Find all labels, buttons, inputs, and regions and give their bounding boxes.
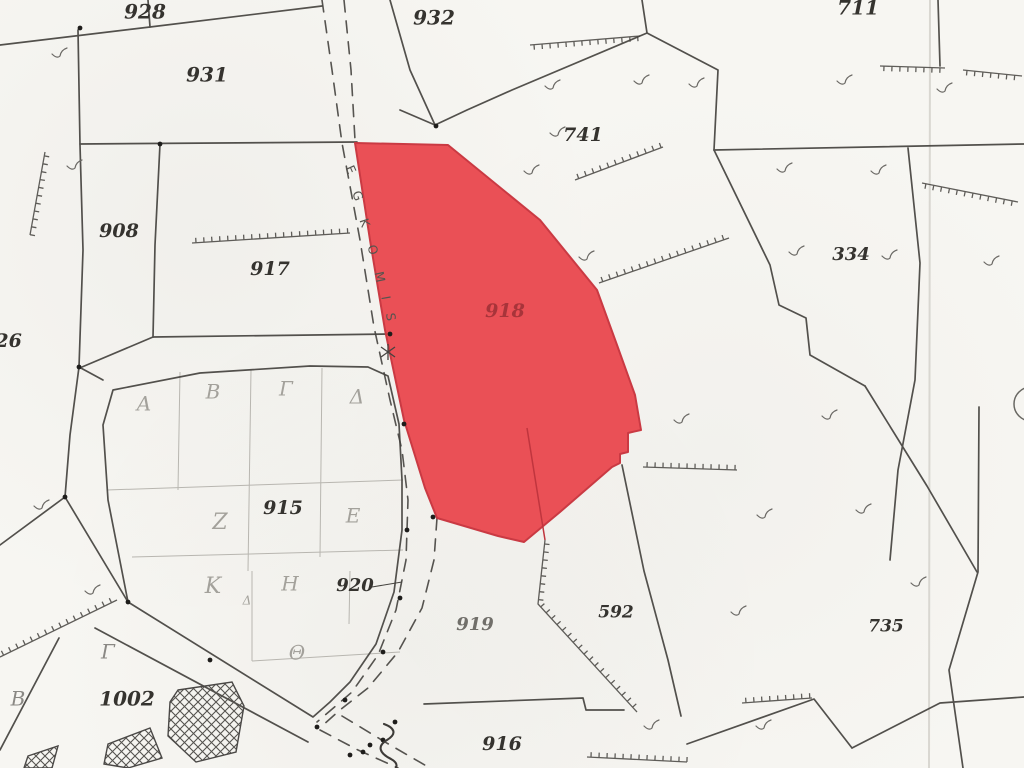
tick-marks [196,228,348,243]
greek-letter: Γ [278,377,294,401]
parcel-915-outline [103,366,402,717]
tick-base-line [575,147,663,180]
greek-letter: Γ [100,640,116,664]
scrub-mark [822,410,837,419]
boundary-line [647,33,718,150]
parcel-label-920: 920 [336,575,374,596]
cadastral-map-page: 918ΑΒΓΔΖΕΚΗΘΔΓΒ9289319327117413349089173… [0,0,1024,768]
survey-monument [381,650,386,655]
boundary-line [865,386,977,572]
boundary-line [642,0,647,33]
road-edge-dashed [320,730,398,768]
survey-monument [78,26,83,31]
boundary-line [80,142,357,144]
tick-base-line [538,540,637,712]
boundary-line [424,698,624,710]
parcel-label-1002: 1002 [99,687,155,711]
boundary-line [687,699,852,748]
tick-marks [967,70,1015,80]
scrub-mark [756,720,771,729]
scrub-mark [911,577,926,586]
boundary-line [714,144,1024,150]
survey-monument [343,698,348,703]
greek-letters: ΑΒΓΔΖΕΚΗΘΔΓΒ [10,377,365,711]
boundary-line [153,334,390,337]
building-hatched [24,746,58,768]
leader-line-920 [372,582,402,587]
boundary-line [714,150,865,386]
map-svg: 918ΑΒΓΔΖΕΚΗΘΔΓΒ9289319327117413349089173… [0,0,1024,768]
tick-base-line [643,467,737,470]
parcel-label-908: 908 [99,220,139,242]
grid-line [132,550,403,557]
boundary-line [938,0,940,66]
tick-base-line [742,698,812,703]
scrub-mark [674,414,689,423]
greek-letter: Ζ [211,510,228,535]
survey-monument [402,422,407,427]
boundary-line [65,30,83,497]
scrub-mark [634,75,649,84]
scrub-mark [757,509,772,518]
scrub-mark [524,165,539,174]
road-name-letter: E [342,163,359,176]
scrub-mark [837,75,852,84]
boundary-line [400,33,647,125]
scrub-mark [882,250,897,259]
tick-base-line [192,233,350,243]
scrub-mark [856,504,871,513]
scrub-mark [85,585,100,594]
scrub-mark [777,163,792,172]
scrub-mark [871,165,886,174]
boundary-line [0,638,59,750]
parcel-label-735: 735 [868,617,904,637]
scrub-mark [34,500,49,509]
greek-letter: Β [10,687,26,711]
tick-marks [601,235,724,282]
boundary-line [0,497,65,545]
highlight-parcel-918: 918 [355,143,641,542]
scrub-mark [731,606,746,615]
tick-base-line [587,757,687,762]
survey-monument [63,495,68,500]
scrub-mark [644,720,659,729]
tick-base-line [880,66,945,68]
parcel-label-741: 741 [563,124,603,146]
parcel-label-915: 915 [263,497,303,519]
scrub-mark [579,251,594,260]
scrub-mark [937,83,952,92]
tick-marks [1,598,111,655]
survey-monument [348,753,353,758]
grid-line [320,368,322,557]
scrub-mark [545,80,560,89]
survey-monument [398,596,403,601]
scrub-mark [52,48,67,57]
tick-marks [925,184,1012,206]
greek-letter: Δ [242,594,252,608]
road-edge-dashed [322,518,437,726]
greek-letter: Ε [345,504,361,528]
survey-monument [405,528,410,533]
parcel-label-334: 334 [832,244,870,265]
building-hatched [168,682,244,762]
building-hatched [104,728,162,768]
sheet-fold-line [929,0,930,768]
parcel-label-931: 931 [186,63,228,87]
grid-line [252,652,400,661]
tick-marks [746,693,810,703]
boundary-line [153,144,160,337]
parcel-label-711: 711 [837,0,879,20]
tick-base-line [0,600,117,657]
survey-monument [431,515,436,520]
tick-base-line [30,152,45,235]
tick-marks [577,143,661,179]
greek-letter: Β [205,380,221,404]
boundary-line [890,148,920,560]
grid-line [178,372,180,490]
survey-monument [434,124,439,129]
boundary-line [622,465,681,716]
boundary-line [82,337,153,367]
greek-letter: Η [280,572,299,596]
survey-monument [315,725,320,730]
parcel-label-918: 918 [485,300,525,322]
parcel-label-919: 919 [456,614,494,635]
survey-monument [368,743,373,748]
parcel-label-932: 932 [413,6,455,30]
survey-monument [126,600,131,605]
grid-line [248,370,251,571]
tick-base-line [963,70,1022,76]
boundary-line [79,367,103,380]
tick-marks [591,752,687,762]
scrub-mark [789,246,804,255]
greek-letter: Δ [349,385,364,409]
tick-marks [30,156,49,236]
parcel-label-326: 326 [0,330,22,352]
survey-monument [361,750,366,755]
boundary-line [949,407,979,768]
tick-marks [539,544,637,707]
survey-monument [208,658,213,663]
parcel-label-928: 928 [124,0,166,24]
scrub-mark [984,256,999,265]
parcel-918-polygon [355,143,641,542]
road-edge-dashed [344,0,355,140]
circle-symbol [1014,387,1024,421]
tick-base-line [922,183,1018,202]
greek-letter: Κ [204,574,223,599]
parcel-label-916: 916 [482,733,522,755]
survey-monument [393,720,398,725]
boundary-line [852,697,1024,748]
scrub-mark [689,78,704,87]
parcel-label-917: 917 [250,258,290,280]
survey-monument [388,332,393,337]
grid-line [107,480,403,490]
parcel-label-592: 592 [598,603,634,623]
greek-letter: Θ [289,641,305,665]
greek-letter: Α [135,392,151,416]
survey-monument [158,142,163,147]
survey-monument [77,365,82,370]
